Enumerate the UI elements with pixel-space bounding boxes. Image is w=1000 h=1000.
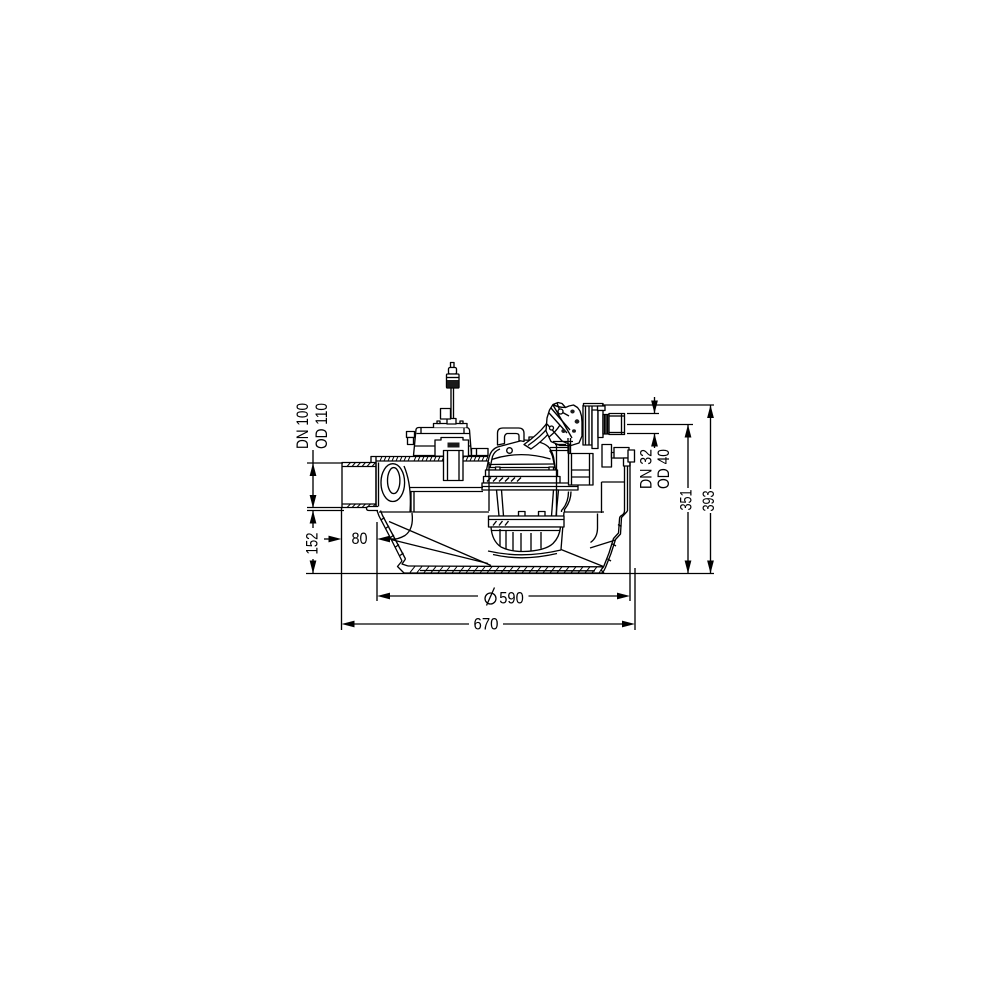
svg-text:393: 393 [700, 491, 718, 512]
svg-text:80: 80 [352, 530, 368, 548]
svg-text:590: 590 [499, 590, 524, 608]
svg-text:OD 110: OD 110 [313, 403, 331, 449]
svg-text:OD 40: OD 40 [655, 449, 673, 489]
svg-text:DN 32: DN 32 [638, 449, 656, 489]
svg-text:351: 351 [678, 490, 696, 511]
svg-text:DN 100: DN 100 [294, 403, 312, 449]
svg-text:670: 670 [474, 616, 499, 634]
svg-text:152: 152 [304, 533, 322, 555]
